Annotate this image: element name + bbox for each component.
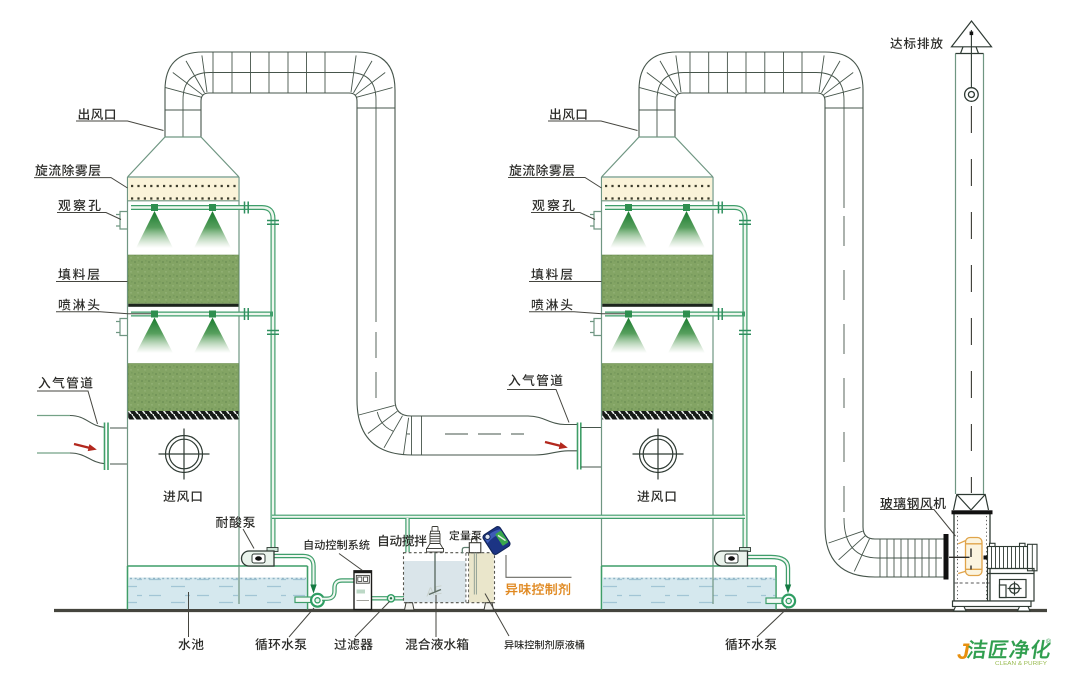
- svg-text:CLEAN & PURIFY: CLEAN & PURIFY: [995, 661, 1047, 667]
- svg-text:J: J: [957, 639, 970, 664]
